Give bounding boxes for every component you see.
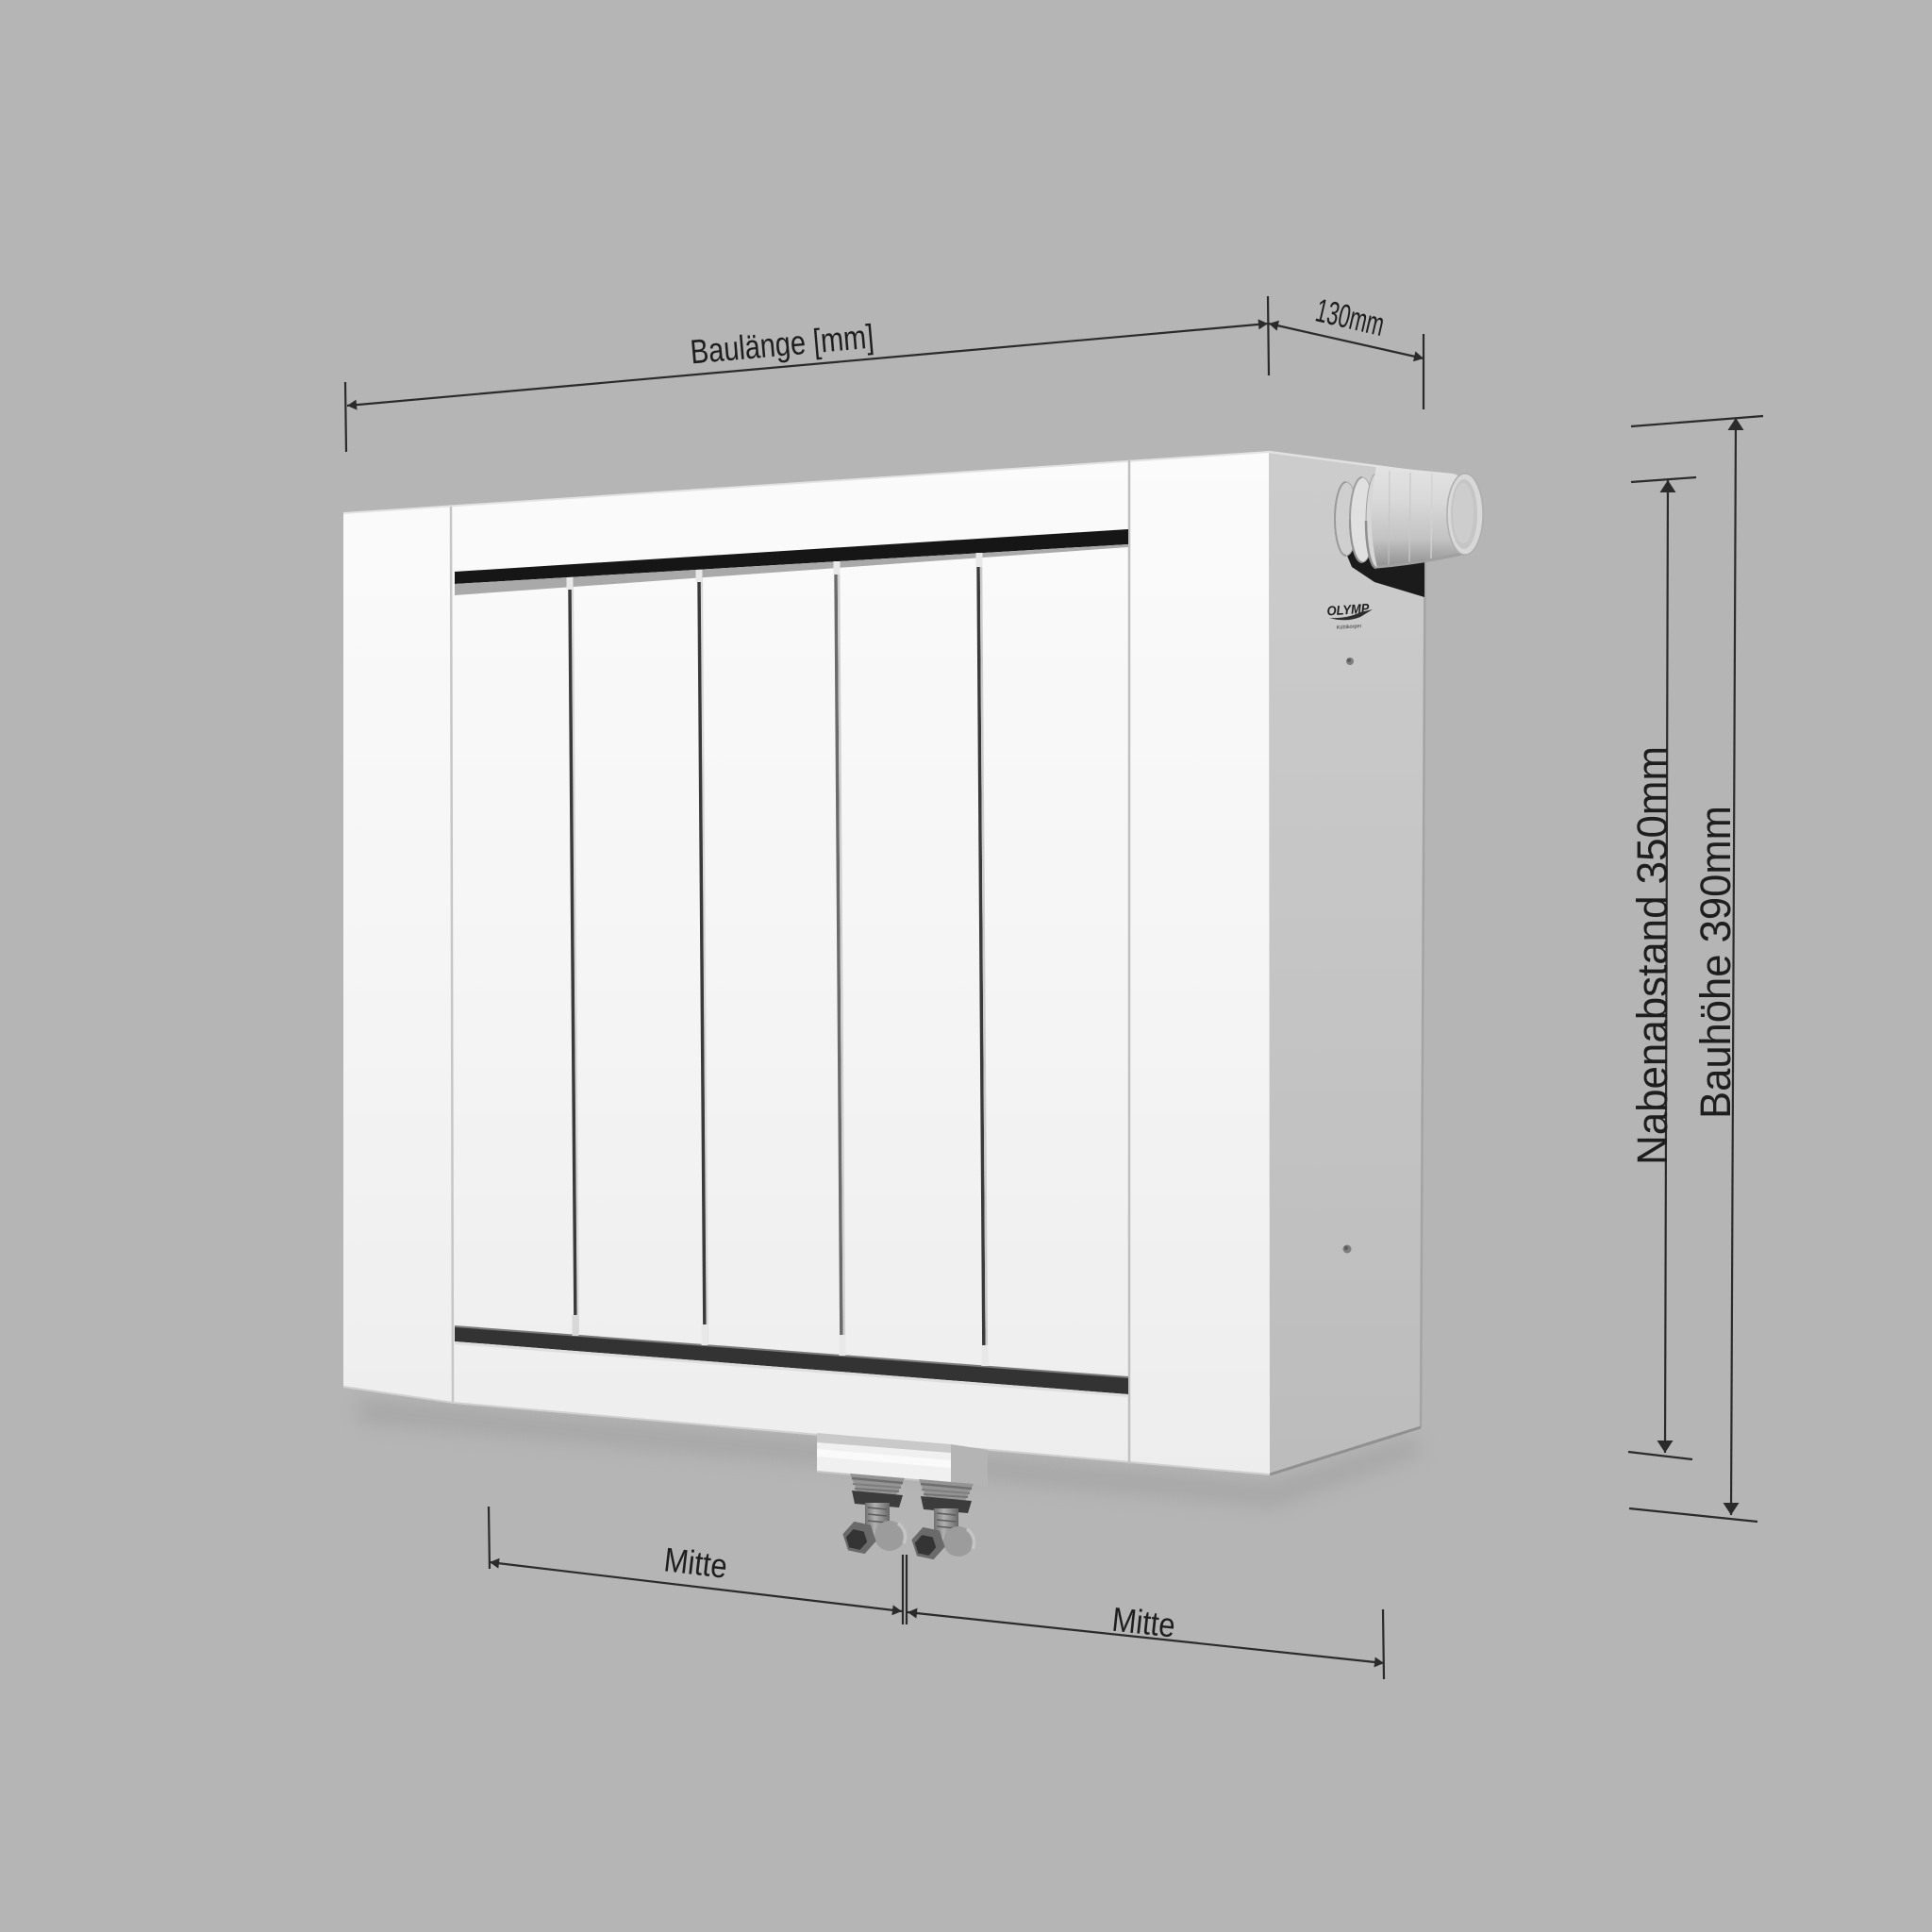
svg-text:Nabenabstand 350mm: Nabenabstand 350mm (1628, 746, 1676, 1165)
svg-text:Mitte: Mitte (1110, 1600, 1177, 1645)
svg-text:Bauhöhe 390mm: Bauhöhe 390mm (1691, 806, 1740, 1119)
svg-text:OLYMP: OLYMP (1326, 600, 1371, 618)
svg-text:Mitte: Mitte (662, 1540, 729, 1585)
